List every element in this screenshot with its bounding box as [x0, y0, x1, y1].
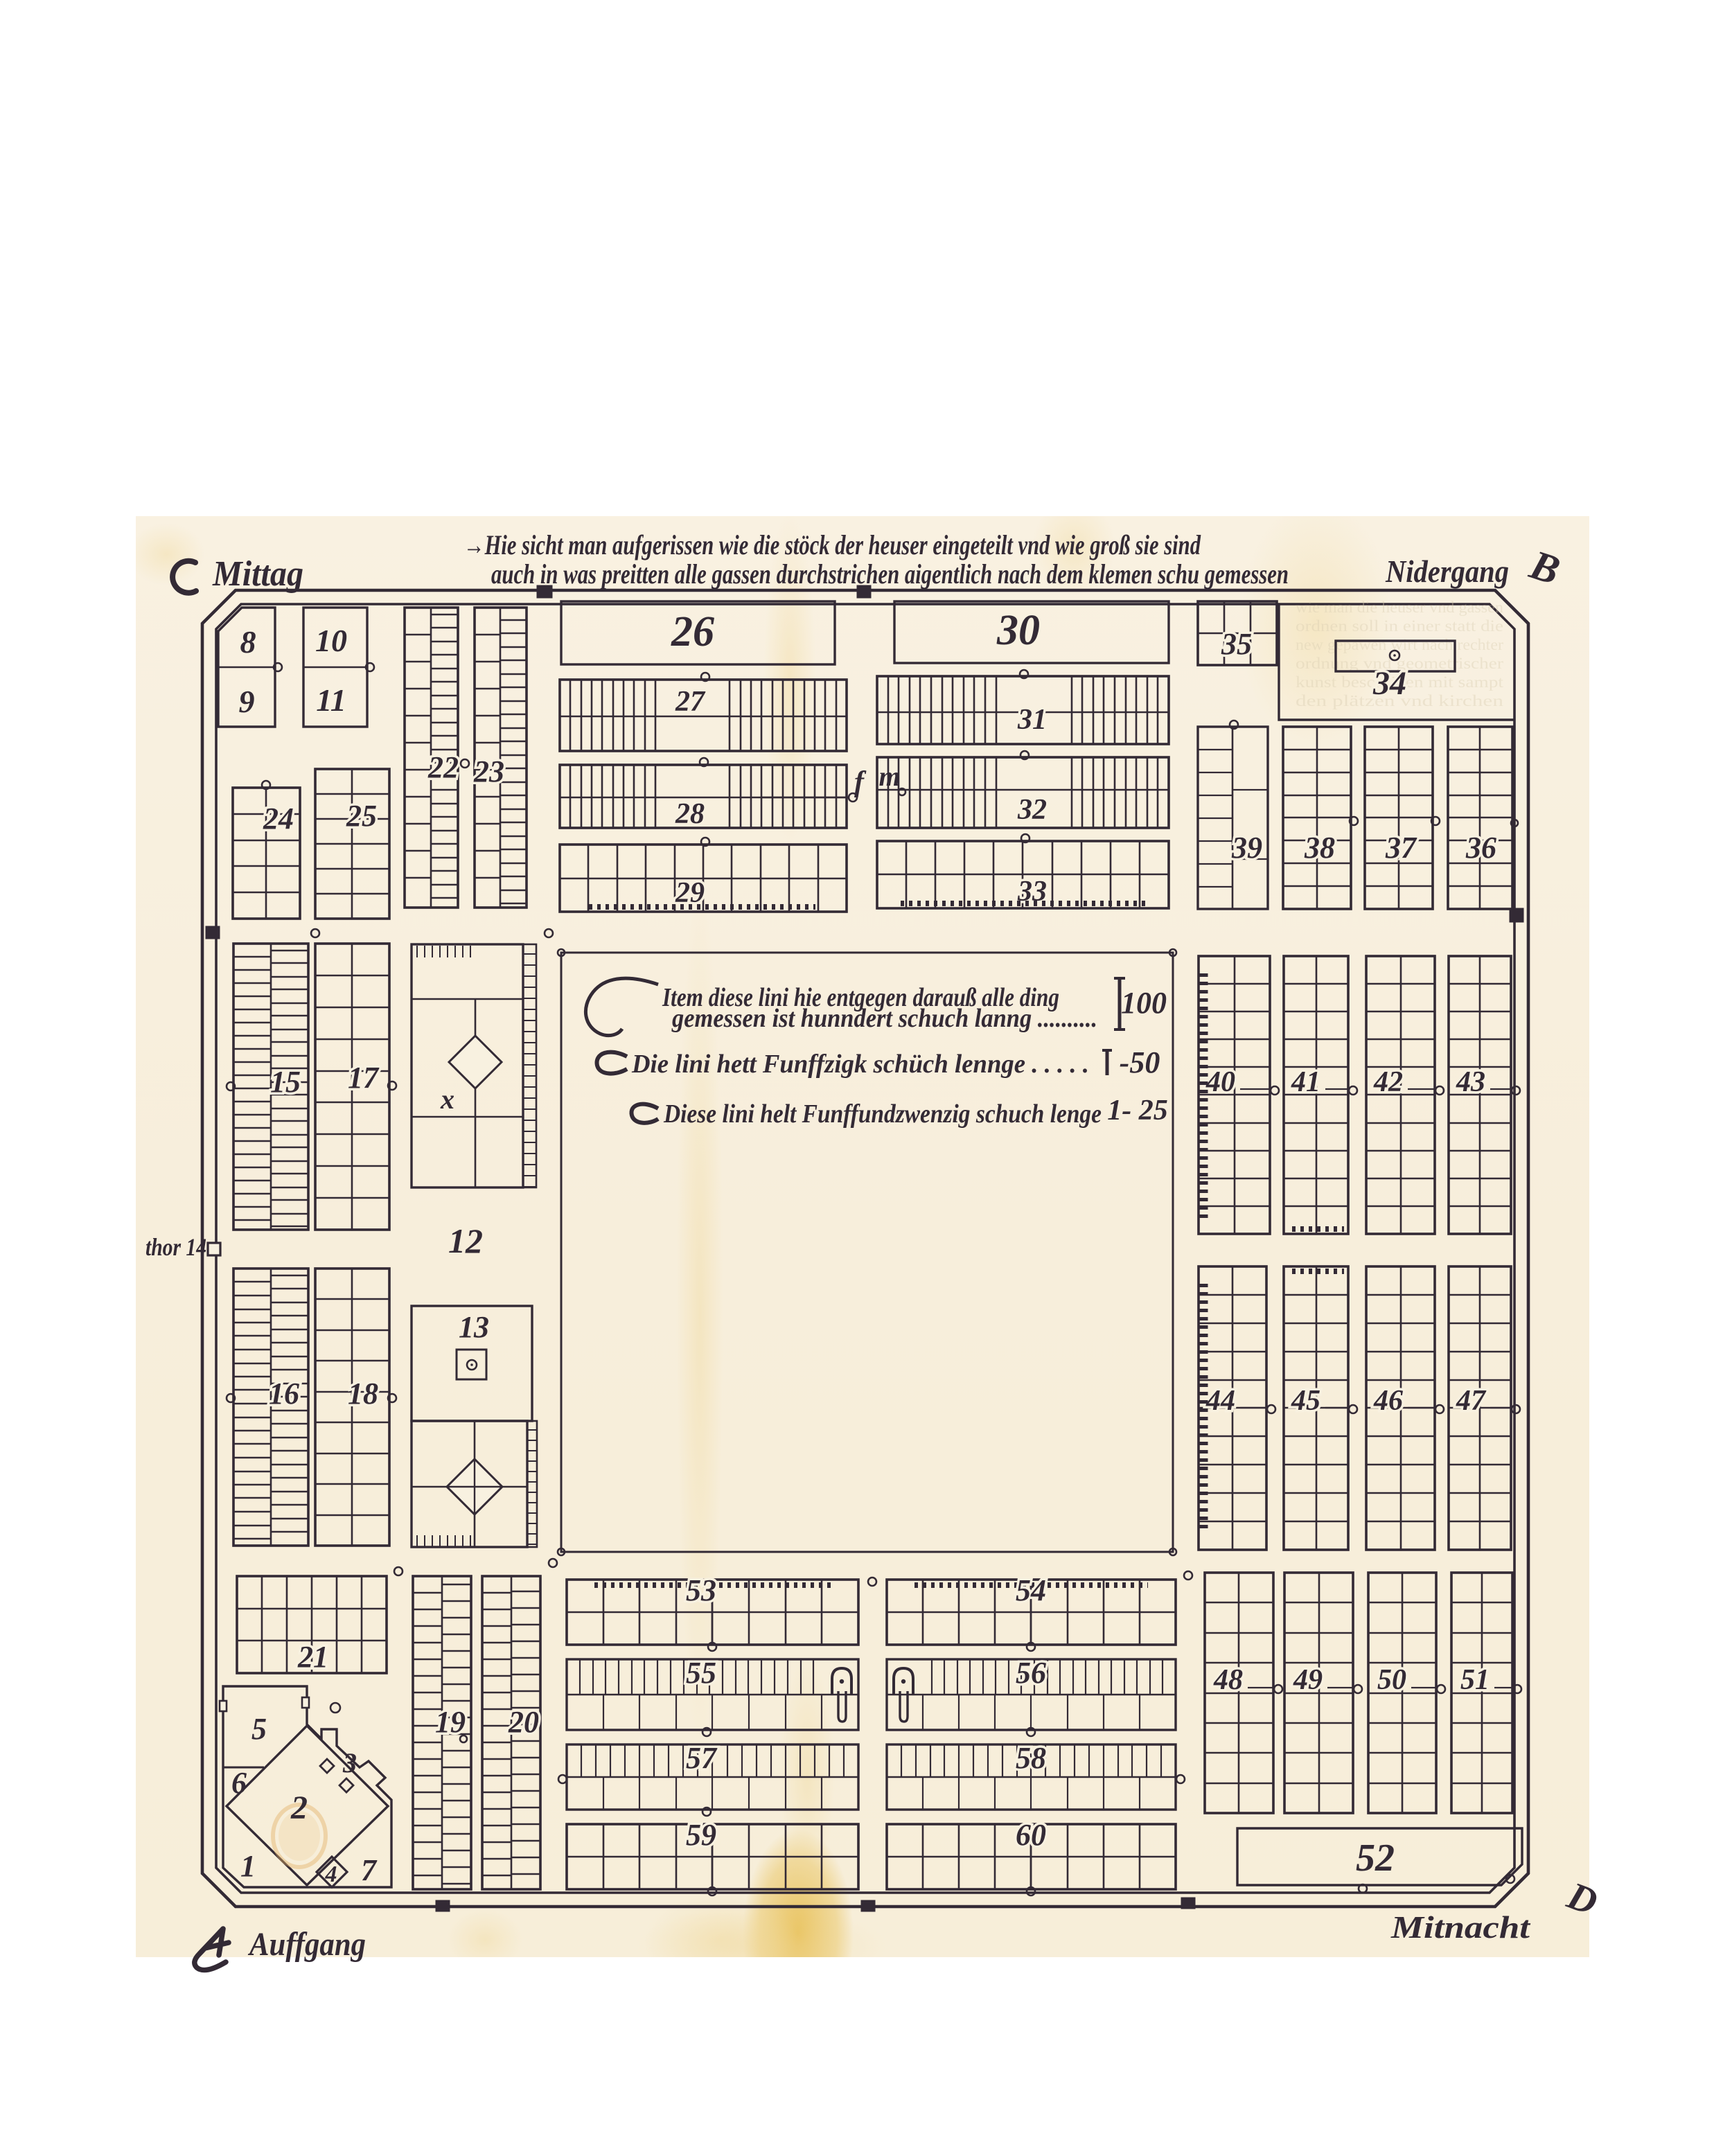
svg-text:22: 22 — [427, 750, 459, 784]
svg-text:41: 41 — [1291, 1066, 1320, 1098]
svg-text:wie man die heuser vnd gassen: wie man die heuser vnd gassen — [1296, 599, 1504, 616]
svg-text:51: 51 — [1460, 1664, 1490, 1696]
svg-text:47: 47 — [1456, 1385, 1487, 1417]
svg-text:23: 23 — [473, 754, 504, 788]
svg-text:42: 42 — [1373, 1066, 1403, 1098]
svg-text:17: 17 — [348, 1061, 380, 1095]
svg-text:37: 37 — [1385, 831, 1417, 865]
svg-text:→Hie sicht man aufgerissen wie: →Hie sicht man aufgerissen wie die stöck… — [463, 529, 1201, 560]
svg-text:1: 1 — [240, 1849, 256, 1883]
svg-text:40: 40 — [1205, 1066, 1235, 1098]
svg-text:43: 43 — [1456, 1066, 1485, 1098]
svg-text:48: 48 — [1213, 1664, 1243, 1696]
svg-text:34: 34 — [1372, 665, 1406, 702]
svg-text:15: 15 — [270, 1065, 301, 1099]
svg-text:19: 19 — [435, 1705, 466, 1739]
svg-text:m: m — [878, 761, 900, 792]
svg-text:59: 59 — [686, 1818, 716, 1852]
svg-text:35: 35 — [1221, 627, 1252, 661]
svg-text:49: 49 — [1293, 1664, 1323, 1696]
svg-text:58: 58 — [1016, 1741, 1046, 1775]
svg-text:45: 45 — [1291, 1385, 1320, 1417]
svg-text:30: 30 — [996, 607, 1040, 654]
svg-text:x: x — [440, 1084, 454, 1115]
svg-text:thor 14: thor 14 — [145, 1233, 206, 1261]
svg-text:53: 53 — [686, 1573, 716, 1607]
svg-text:new gepawen wirt nach rechter: new gepawen wirt nach rechter — [1296, 636, 1503, 653]
svg-text:Die lini hett Funffzigk schüch: Die lini hett Funffzigk schüch lennge . … — [631, 1050, 1089, 1079]
svg-text:18: 18 — [348, 1377, 378, 1411]
svg-text:24: 24 — [263, 802, 294, 836]
svg-text:25: 25 — [346, 799, 377, 833]
svg-text:9: 9 — [239, 684, 255, 719]
svg-text:Mitnacht: Mitnacht — [1390, 1909, 1531, 1945]
svg-text:60: 60 — [1016, 1818, 1046, 1852]
svg-text:6: 6 — [231, 1766, 247, 1800]
svg-text:52: 52 — [1356, 1837, 1395, 1880]
svg-text:46: 46 — [1373, 1385, 1403, 1417]
svg-text:16: 16 — [269, 1377, 299, 1411]
svg-text:gemessen ist hunndert schuch l: gemessen ist hunndert schuch lanng .....… — [671, 1004, 1097, 1033]
svg-text:27: 27 — [675, 686, 706, 718]
svg-text:31: 31 — [1017, 704, 1047, 736]
svg-text:55: 55 — [686, 1656, 716, 1690]
svg-text:3: 3 — [342, 1747, 357, 1778]
svg-text:44: 44 — [1205, 1385, 1235, 1417]
svg-text:8: 8 — [240, 624, 256, 660]
svg-text:1- 25: 1- 25 — [1107, 1095, 1168, 1126]
svg-text:100: 100 — [1121, 986, 1167, 1020]
svg-text:54: 54 — [1016, 1573, 1046, 1607]
svg-text:32: 32 — [1017, 794, 1047, 826]
svg-text:Auffgang: Auffgang — [247, 1926, 366, 1963]
svg-text:2: 2 — [290, 1790, 308, 1826]
svg-text:50: 50 — [1377, 1664, 1406, 1696]
svg-text:5: 5 — [251, 1712, 267, 1746]
svg-text:7: 7 — [361, 1853, 378, 1887]
svg-text:20: 20 — [508, 1705, 539, 1739]
svg-text:12: 12 — [448, 1221, 483, 1260]
svg-text:Mittag: Mittag — [212, 554, 303, 594]
svg-text:Diese lini helt Funffundzwenzi: Diese lini helt Funffundzwenzig schuch l… — [663, 1099, 1102, 1129]
svg-text:11: 11 — [316, 682, 346, 718]
svg-text:56: 56 — [1016, 1656, 1046, 1690]
svg-text:10: 10 — [315, 623, 347, 658]
svg-text:ordnen soll in einer statt die: ordnen soll in einer statt die — [1296, 617, 1503, 635]
svg-text:36: 36 — [1465, 831, 1496, 865]
svg-text:Nidergang: Nidergang — [1385, 554, 1509, 589]
svg-text:21: 21 — [297, 1640, 328, 1674]
svg-text:auch in was preitten alle gass: auch in was preitten alle gassen durchst… — [491, 558, 1289, 590]
svg-text:38: 38 — [1304, 831, 1335, 865]
svg-text:39: 39 — [1231, 831, 1262, 865]
svg-text:57: 57 — [686, 1741, 718, 1775]
svg-text:4: 4 — [325, 1862, 337, 1887]
svg-text:28: 28 — [675, 798, 705, 830]
svg-text:13: 13 — [459, 1310, 489, 1344]
svg-text:-50: -50 — [1120, 1045, 1160, 1079]
svg-text:26: 26 — [671, 608, 714, 655]
